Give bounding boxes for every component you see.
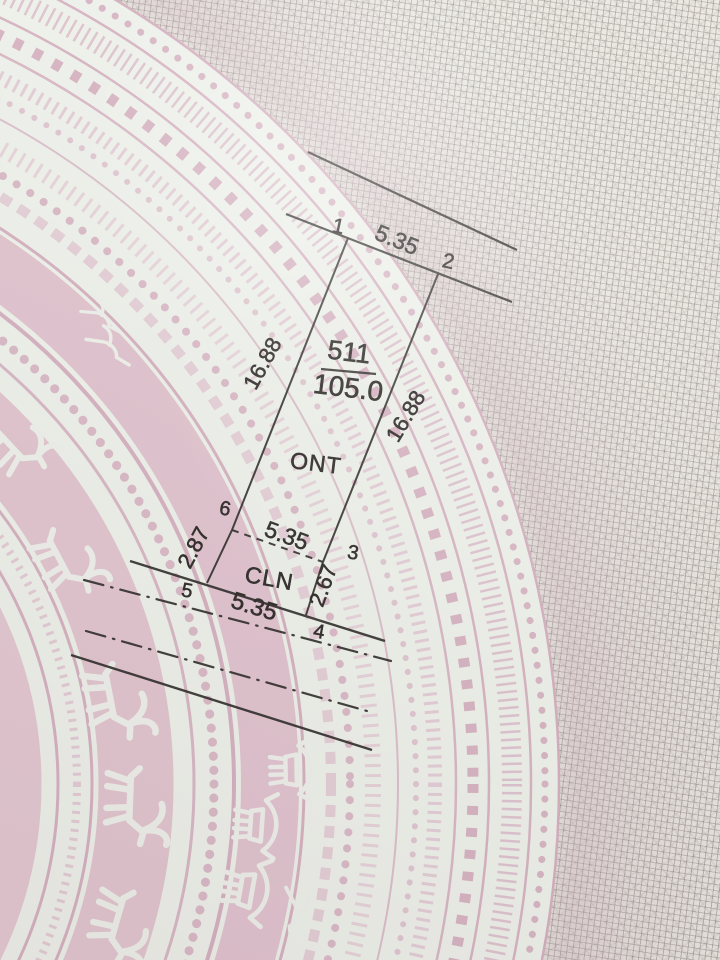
vertex-label-4: 4 <box>312 620 327 644</box>
certificate-photo: 1 5.35 2 16.88 511 105.0 16.88 ONT 6 5.3… <box>0 0 720 960</box>
parcel-number: 511 <box>326 335 372 370</box>
road-centerline-dashdot-lower <box>86 631 374 713</box>
edge-length-top: 5.35 <box>371 219 422 260</box>
land-use-code-lower: CLN <box>243 561 296 595</box>
vertex-label-2: 2 <box>440 249 456 274</box>
edge-length-right: 16.88 <box>381 386 431 446</box>
vertex-label-1: 1 <box>330 214 346 239</box>
edge-length-left: 16.88 <box>238 333 287 393</box>
land-use-code-upper: ONT <box>289 447 343 479</box>
vertex-label-5: 5 <box>180 579 195 603</box>
parcel-diagram: 1 5.35 2 16.88 511 105.0 16.88 ONT 6 5.3… <box>0 0 720 960</box>
edge-length-lower-right: 2.67 <box>304 561 342 610</box>
edge-length-lower-left: 2.87 <box>172 523 214 573</box>
vertex-label-3: 3 <box>346 541 361 565</box>
vertex-label-6: 6 <box>218 497 233 521</box>
